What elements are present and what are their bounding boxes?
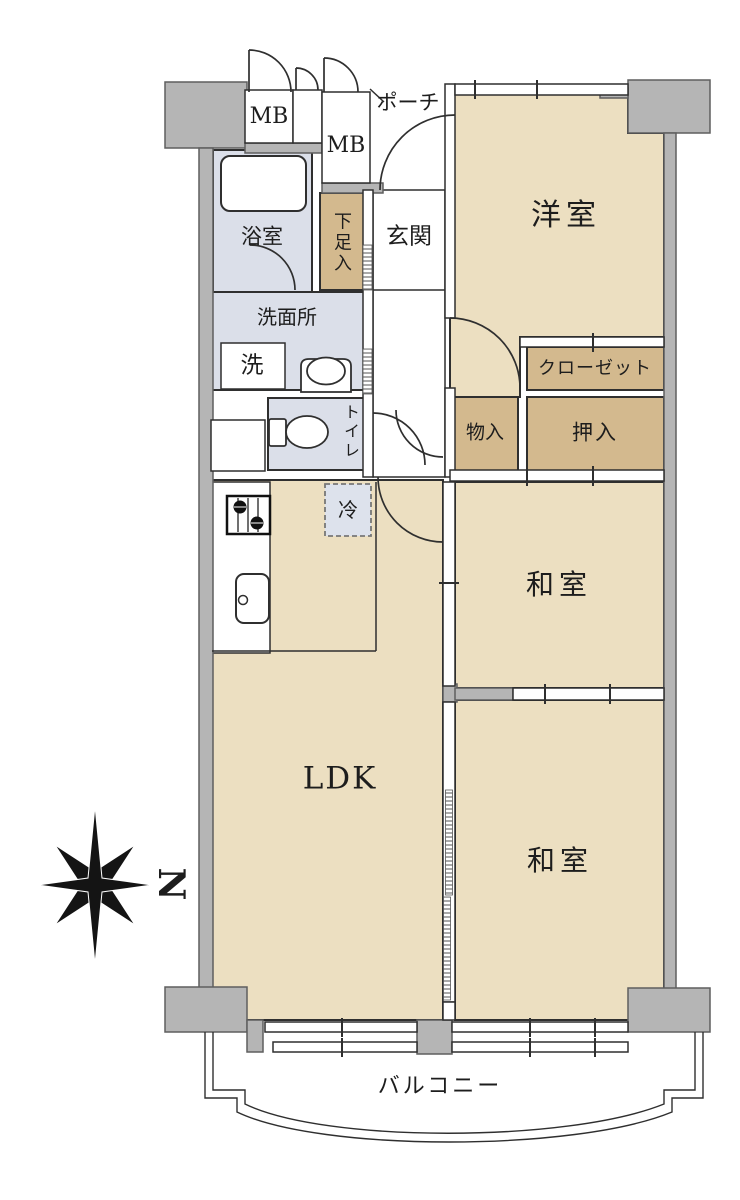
wall-under-porch: [322, 183, 383, 193]
label-japanese-room-middle: 和室: [526, 571, 592, 599]
stove-icon: [227, 496, 270, 534]
sliding-door-between-washitsu: [513, 688, 664, 700]
label-bathroom: 浴室: [241, 227, 283, 248]
wall-left: [199, 148, 213, 988]
label-porch: ポーチ: [377, 93, 440, 114]
compass-rose-icon: [38, 806, 152, 964]
label-ldk: LDK: [303, 764, 378, 795]
toilet-tank: [269, 419, 286, 446]
label-futon-closet: 押入: [572, 423, 618, 444]
label-meter-box-left: MB: [250, 106, 289, 128]
label-compass-north: N: [153, 868, 189, 901]
wall-corridor-right-lower: [445, 388, 455, 477]
column-top-right: [628, 80, 710, 133]
label-closet: クローゼット: [538, 360, 652, 378]
toilet-bowl-icon: [286, 416, 328, 448]
kitchen-sink-icon: [236, 574, 269, 623]
counter-box: [211, 420, 265, 471]
partition-track-a: [446, 790, 453, 895]
meterbox-left-door-arc: [249, 50, 291, 92]
bathtub-icon: [221, 156, 306, 211]
wall-corridor-left: [363, 190, 373, 477]
meterbox-right-door-arc: [324, 58, 358, 92]
wash-basin-icon: [307, 358, 345, 385]
label-storage: 物入: [466, 424, 504, 443]
compass-cardinal-star: [38, 806, 152, 964]
meterbox-mid-door-arc: [296, 68, 318, 90]
wall-window-left-stub: [247, 1020, 263, 1052]
window-bottom-right-b: [452, 1042, 628, 1052]
label-balcony: バルコニー: [378, 1076, 503, 1098]
partition-foot: [443, 1002, 455, 1020]
floor-plan: MB MB ポーチ 玄関 浴室 下足入 洗面所 洗 トイレ 洋室 クローゼット …: [0, 0, 740, 1200]
label-washroom: 洗面所: [257, 307, 317, 327]
column-bottom-right: [628, 988, 710, 1032]
entrance-door-arc: [380, 115, 455, 190]
wall-partition-stub: [455, 688, 513, 700]
label-japanese-room-bottom: 和室: [527, 847, 593, 875]
floor-plan-drawing: [0, 0, 740, 1200]
label-western-room: 洋室: [531, 201, 601, 231]
window-top: [455, 84, 628, 95]
label-shoe-storage: 下足入: [332, 212, 350, 275]
window-bottom-right-a: [452, 1022, 628, 1032]
wall-corridor-right-upper: [445, 84, 455, 318]
pillar-balcony-middle: [417, 1020, 452, 1054]
label-refrigerator: 冷: [338, 500, 358, 520]
label-entrance: 玄関: [386, 226, 432, 249]
meter-box-middle: [293, 90, 322, 143]
column-top-left: [165, 82, 247, 148]
door-track-lower: [363, 349, 372, 394]
wall-right: [664, 133, 676, 990]
label-meter-box-right: MB: [327, 135, 366, 157]
label-toilet: トイレ: [342, 404, 358, 461]
sliding-wall-mid: [450, 470, 664, 481]
label-washer: 洗: [241, 355, 264, 378]
door-track-upper: [363, 245, 372, 290]
column-bottom-left: [165, 987, 247, 1032]
window-bottom-left-b: [273, 1042, 417, 1052]
partition-track-b: [444, 897, 451, 1000]
wall-under-meterbox: [245, 143, 322, 153]
